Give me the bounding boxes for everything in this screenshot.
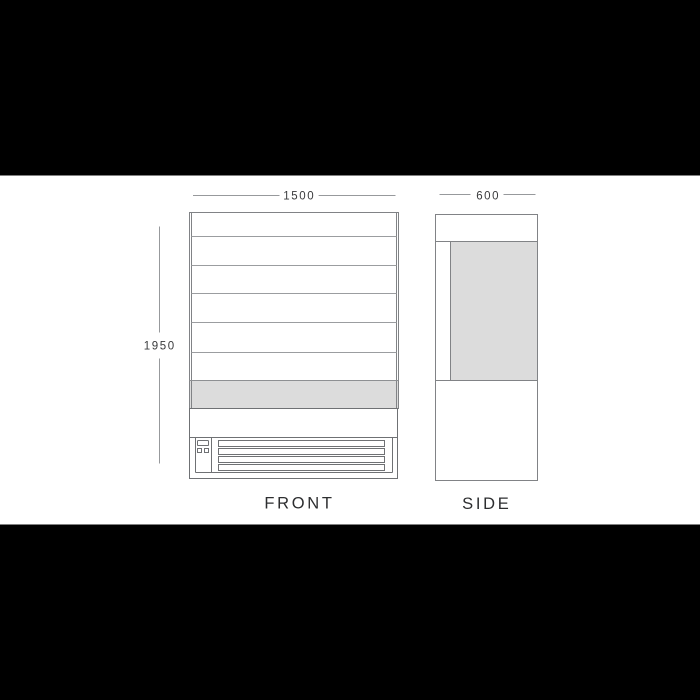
svg-text:1500: 1500 [283, 191, 315, 203]
svg-text:FRONT: FRONT [264, 495, 334, 513]
svg-text:600: 600 [476, 190, 500, 202]
svg-text:1950: 1950 [144, 340, 176, 352]
svg-text:SIDE: SIDE [462, 495, 511, 513]
